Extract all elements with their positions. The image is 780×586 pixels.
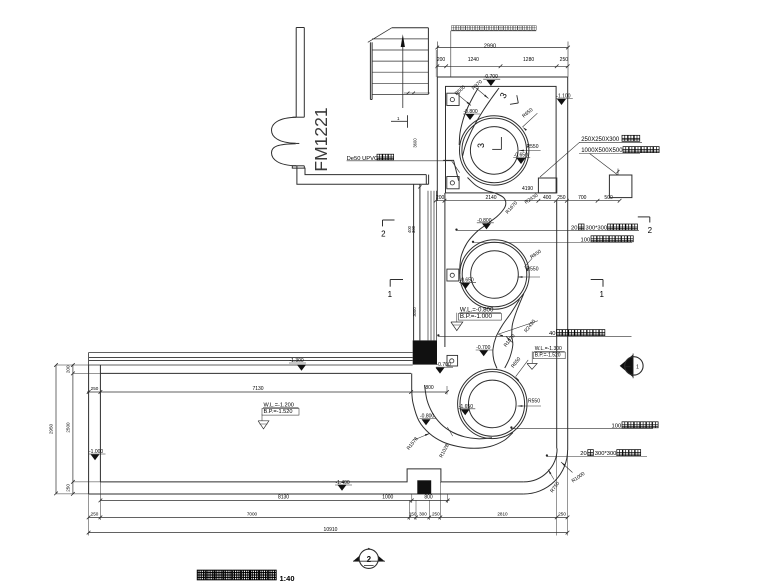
svg-text:400: 400 (543, 195, 552, 201)
svg-text:1000: 1000 (382, 495, 393, 501)
svg-text:250: 250 (558, 512, 566, 517)
svg-text:FM1221: FM1221 (311, 107, 331, 171)
svg-text:3000: 3000 (412, 307, 417, 317)
svg-text:40: 40 (549, 331, 555, 337)
svg-text:800: 800 (424, 495, 433, 501)
svg-text:3600: 3600 (413, 138, 418, 148)
svg-text:3: 3 (476, 143, 486, 148)
svg-text:100: 100 (612, 423, 622, 429)
svg-text:200: 200 (436, 195, 445, 201)
svg-text:B.P.=-1.520: B.P.=-1.520 (264, 409, 293, 415)
svg-text:2950: 2950 (49, 423, 54, 434)
svg-text:1240: 1240 (468, 57, 479, 63)
svg-text:2990: 2990 (484, 43, 496, 49)
svg-text:1: 1 (388, 290, 393, 299)
svg-text:300*300: 300*300 (595, 451, 617, 457)
svg-text:2: 2 (648, 226, 653, 235)
svg-text:800: 800 (425, 385, 434, 391)
svg-text:20: 20 (571, 226, 577, 232)
svg-text:2140: 2140 (485, 195, 496, 201)
svg-text:300*300: 300*300 (586, 226, 608, 232)
svg-text:250: 250 (66, 484, 71, 492)
svg-text:300: 300 (419, 512, 427, 517)
svg-text:20: 20 (580, 451, 586, 457)
svg-text:300: 300 (411, 225, 416, 233)
svg-text:8130: 8130 (278, 495, 289, 501)
svg-text:1: 1 (636, 365, 639, 371)
svg-text:2: 2 (367, 555, 372, 564)
svg-text:200: 200 (437, 57, 446, 63)
svg-text:R550: R550 (527, 267, 539, 273)
svg-text:4190: 4190 (522, 186, 533, 192)
svg-text:1280: 1280 (523, 57, 534, 63)
svg-text:250: 250 (432, 512, 440, 517)
svg-text:2810: 2810 (497, 512, 508, 517)
svg-text:7130: 7130 (252, 386, 263, 392)
svg-text:B.P.=-1.000: B.P.=-1.000 (460, 313, 493, 320)
svg-text:700: 700 (578, 195, 587, 201)
svg-text:2500: 2500 (66, 422, 71, 433)
svg-text:R550: R550 (528, 399, 540, 405)
svg-text:250: 250 (91, 386, 99, 391)
svg-text:2: 2 (381, 230, 386, 239)
svg-text:200: 200 (66, 365, 71, 373)
svg-text:1: 1 (599, 290, 604, 299)
svg-text:7000: 7000 (247, 512, 258, 517)
svg-text:1:40: 1:40 (280, 574, 295, 583)
svg-text:10910: 10910 (324, 527, 338, 533)
svg-text:R550: R550 (527, 144, 539, 150)
svg-text:B.P.=-1.520: B.P.=-1.520 (535, 353, 561, 359)
svg-text:250: 250 (91, 512, 99, 517)
svg-text:250: 250 (560, 57, 569, 63)
svg-text:250: 250 (557, 195, 566, 201)
svg-text:100: 100 (581, 237, 591, 243)
